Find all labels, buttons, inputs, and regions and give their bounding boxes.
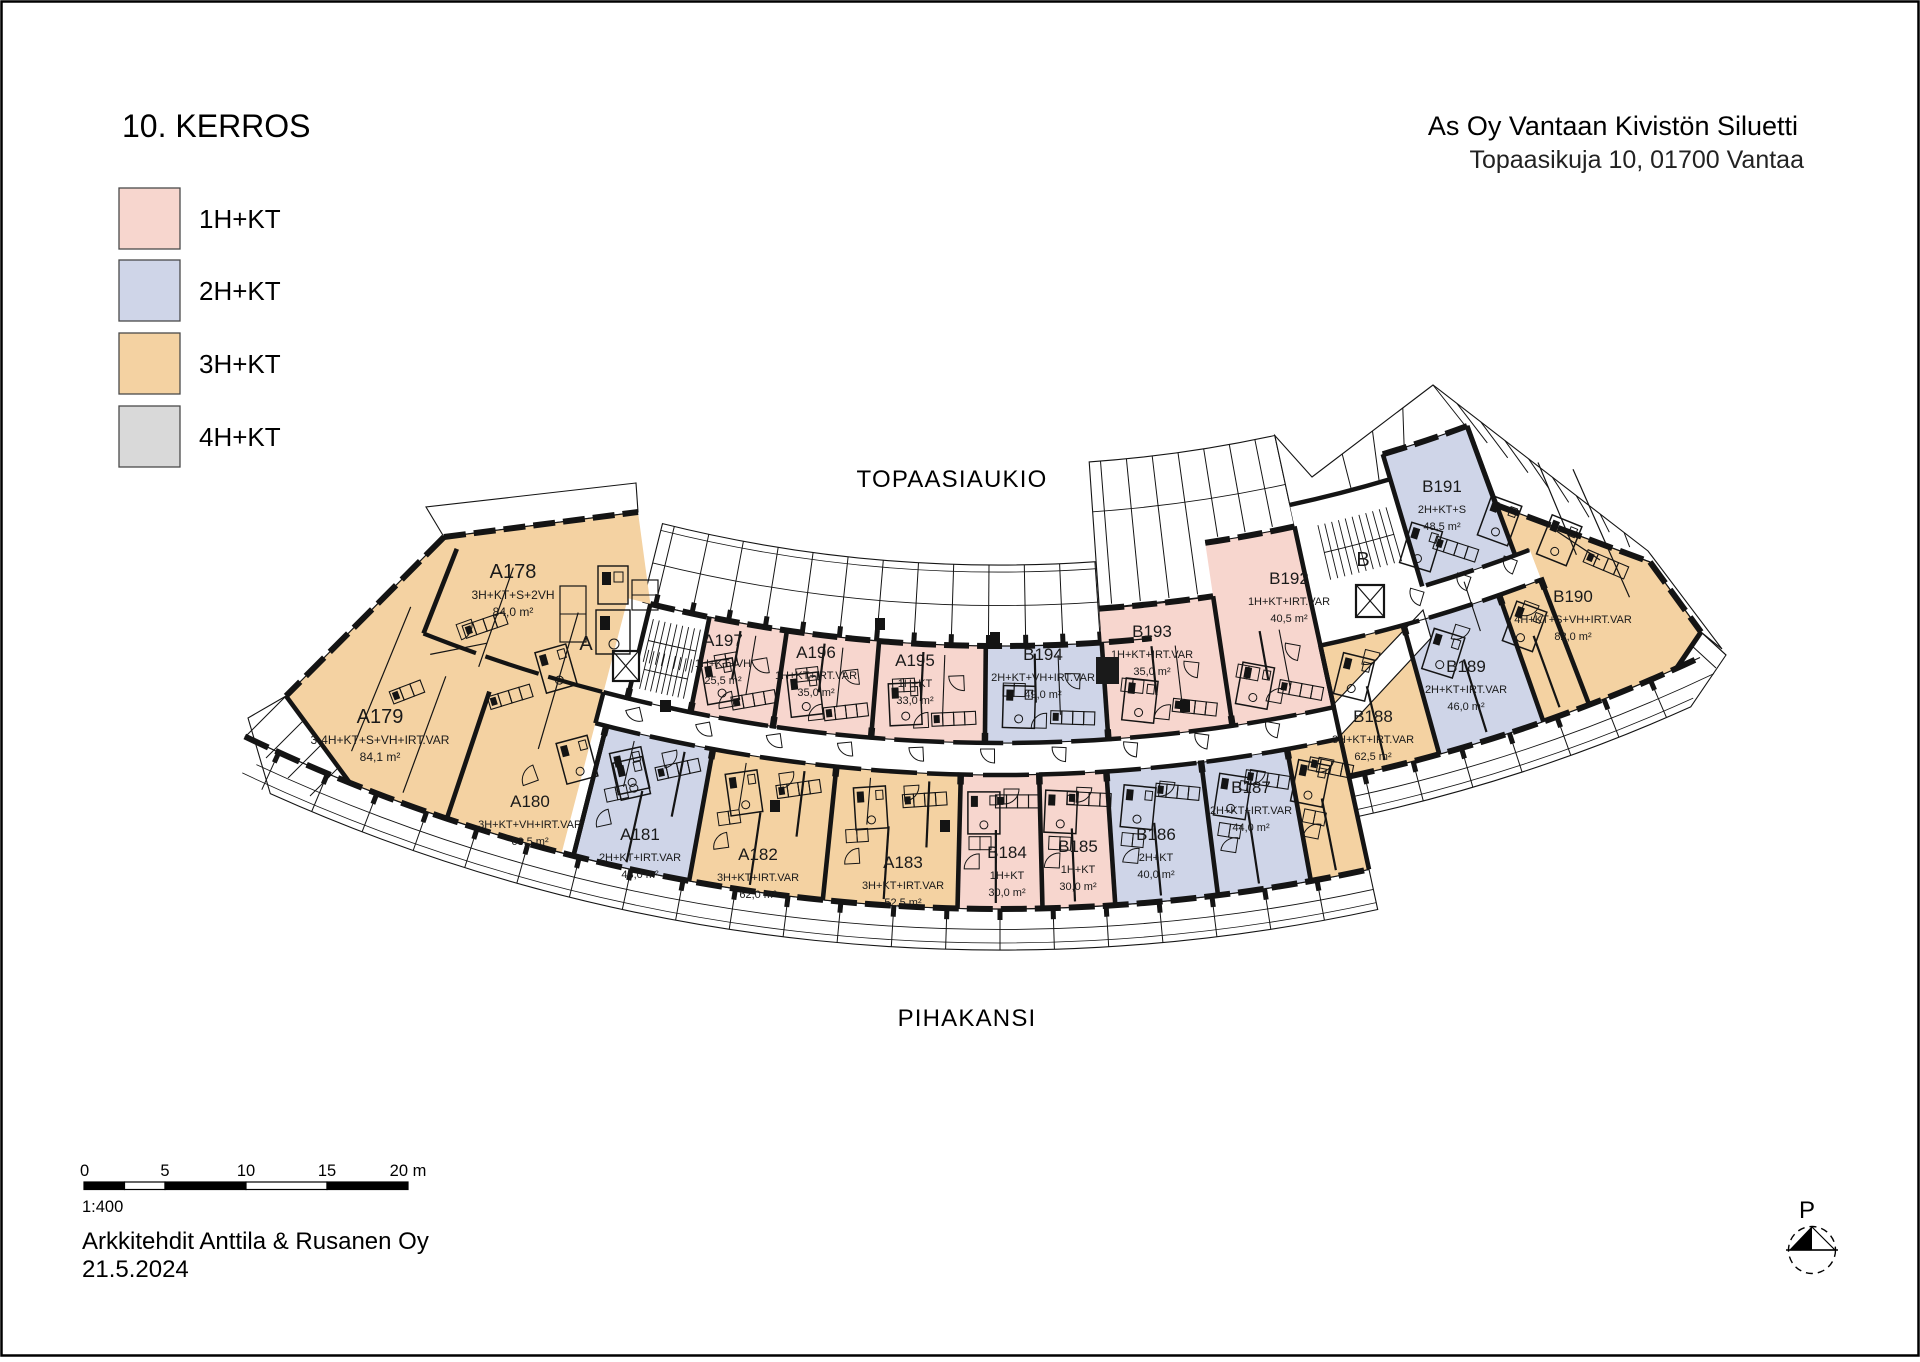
svg-text:B194: B194 — [1023, 645, 1063, 664]
svg-text:48,5 m²: 48,5 m² — [1423, 521, 1461, 533]
svg-text:33,0 m²: 33,0 m² — [896, 695, 934, 707]
svg-text:35,0 m²: 35,0 m² — [1133, 666, 1171, 678]
svg-text:3H+KT+IRT.VAR: 3H+KT+IRT.VAR — [1332, 734, 1414, 746]
svg-text:2H+KT+IRT.VAR: 2H+KT+IRT.VAR — [1210, 805, 1292, 817]
svg-text:25,5 m²: 25,5 m² — [704, 675, 742, 687]
svg-text:B192: B192 — [1269, 569, 1309, 588]
svg-text:B187: B187 — [1231, 778, 1271, 797]
svg-text:5: 5 — [160, 1162, 169, 1180]
svg-text:1H+KT+IRT.VAR: 1H+KT+IRT.VAR — [1111, 649, 1193, 661]
svg-text:B186: B186 — [1136, 825, 1176, 844]
svg-text:A181: A181 — [620, 825, 660, 844]
svg-text:1H+KT: 1H+KT — [199, 204, 281, 234]
svg-text:0: 0 — [80, 1162, 89, 1180]
svg-text:4H+KT+S+VH+IRT.VAR: 4H+KT+S+VH+IRT.VAR — [1514, 614, 1632, 626]
svg-text:1H+KT: 1H+KT — [990, 870, 1025, 882]
svg-text:B190: B190 — [1553, 587, 1593, 606]
svg-text:40,0 m²: 40,0 m² — [1137, 869, 1175, 881]
svg-text:B188: B188 — [1353, 707, 1393, 726]
svg-text:20 m: 20 m — [390, 1162, 427, 1180]
svg-text:A195: A195 — [895, 651, 935, 670]
svg-text:A182: A182 — [738, 845, 778, 864]
svg-text:P: P — [1799, 1197, 1815, 1224]
svg-text:2H+KT+IRT.VAR: 2H+KT+IRT.VAR — [1425, 684, 1507, 696]
svg-text:A180: A180 — [510, 792, 550, 811]
svg-text:30,0 m²: 30,0 m² — [1059, 881, 1097, 893]
svg-text:A196: A196 — [796, 643, 836, 662]
svg-text:3H+KT+IRT.VAR: 3H+KT+IRT.VAR — [862, 880, 944, 892]
svg-text:49,0 m²: 49,0 m² — [1024, 689, 1062, 701]
svg-text:62,0 m²: 62,0 m² — [739, 889, 777, 901]
svg-text:Arkkitehdit Anttila & Rusanen: Arkkitehdit Anttila & Rusanen Oy — [82, 1228, 429, 1255]
svg-text:3H+KT: 3H+KT — [199, 349, 281, 379]
svg-text:2H+KT+S: 2H+KT+S — [1418, 504, 1466, 516]
svg-text:35,0 m²: 35,0 m² — [797, 687, 835, 699]
svg-text:1H+KT+VH: 1H+KT+VH — [695, 658, 751, 670]
svg-text:A179: A179 — [357, 706, 404, 728]
svg-text:B185: B185 — [1058, 837, 1098, 856]
svg-text:1H+KT+IRT.VAR: 1H+KT+IRT.VAR — [1248, 596, 1330, 608]
svg-text:84,0 m²: 84,0 m² — [493, 605, 534, 619]
svg-text:B191: B191 — [1422, 477, 1462, 496]
svg-text:1H+KT: 1H+KT — [1061, 864, 1096, 876]
svg-text:3H+KT+S+2VH: 3H+KT+S+2VH — [471, 588, 554, 602]
svg-text:2H+KT: 2H+KT — [199, 276, 281, 306]
svg-text:TOPAASIAUKIO: TOPAASIAUKIO — [857, 466, 1048, 493]
svg-text:3H+KT+VH+IRT.VAR: 3H+KT+VH+IRT.VAR — [478, 819, 582, 831]
svg-text:4H+KT: 4H+KT — [199, 422, 281, 452]
svg-text:B193: B193 — [1132, 622, 1172, 641]
svg-text:44,0 m²: 44,0 m² — [1232, 822, 1270, 834]
svg-text:B189: B189 — [1446, 657, 1486, 676]
svg-text:1H+KT: 1H+KT — [898, 678, 933, 690]
svg-text:52,5 m²: 52,5 m² — [884, 897, 922, 909]
svg-text:2H+KT+IRT.VAR: 2H+KT+IRT.VAR — [599, 852, 681, 864]
svg-text:82,0 m²: 82,0 m² — [1554, 631, 1592, 643]
svg-text:10: 10 — [237, 1162, 255, 1180]
svg-text:1:400: 1:400 — [82, 1198, 123, 1216]
svg-text:3-4H+KT+S+VH+IRT.VAR: 3-4H+KT+S+VH+IRT.VAR — [311, 733, 450, 747]
svg-text:62,5 m²: 62,5 m² — [1354, 751, 1392, 763]
svg-text:1H+KT+IRT.VAR: 1H+KT+IRT.VAR — [775, 670, 857, 682]
svg-text:Topaasikuja 10, 01700 Vantaa: Topaasikuja 10, 01700 Vantaa — [1469, 146, 1804, 174]
svg-text:PIHAKANSI: PIHAKANSI — [898, 1005, 1037, 1032]
svg-text:63,5 m²: 63,5 m² — [511, 836, 549, 848]
svg-text:A178: A178 — [490, 561, 537, 583]
svg-text:46,0 m²: 46,0 m² — [1447, 701, 1485, 713]
svg-text:A: A — [579, 633, 593, 655]
svg-text:15: 15 — [318, 1162, 336, 1180]
svg-text:21.5.2024: 21.5.2024 — [82, 1256, 189, 1283]
svg-text:40,5 m²: 40,5 m² — [1270, 613, 1308, 625]
svg-text:3H+KT+IRT.VAR: 3H+KT+IRT.VAR — [717, 872, 799, 884]
svg-text:A197: A197 — [703, 631, 743, 650]
svg-text:A183: A183 — [883, 853, 923, 872]
svg-text:84,1 m²: 84,1 m² — [360, 750, 401, 764]
svg-text:B: B — [1356, 549, 1369, 571]
svg-text:B184: B184 — [987, 843, 1027, 862]
svg-text:As Oy Vantaan Kivistön Siluett: As Oy Vantaan Kivistön Siluetti — [1428, 111, 1798, 141]
svg-text:30,0 m²: 30,0 m² — [988, 887, 1026, 899]
svg-text:48,0 m²: 48,0 m² — [621, 869, 659, 881]
svg-text:2H+KT+VH+IRT.VAR: 2H+KT+VH+IRT.VAR — [991, 672, 1095, 684]
svg-text:10. KERROS: 10. KERROS — [122, 108, 311, 144]
svg-text:2H+KT: 2H+KT — [1139, 852, 1174, 864]
